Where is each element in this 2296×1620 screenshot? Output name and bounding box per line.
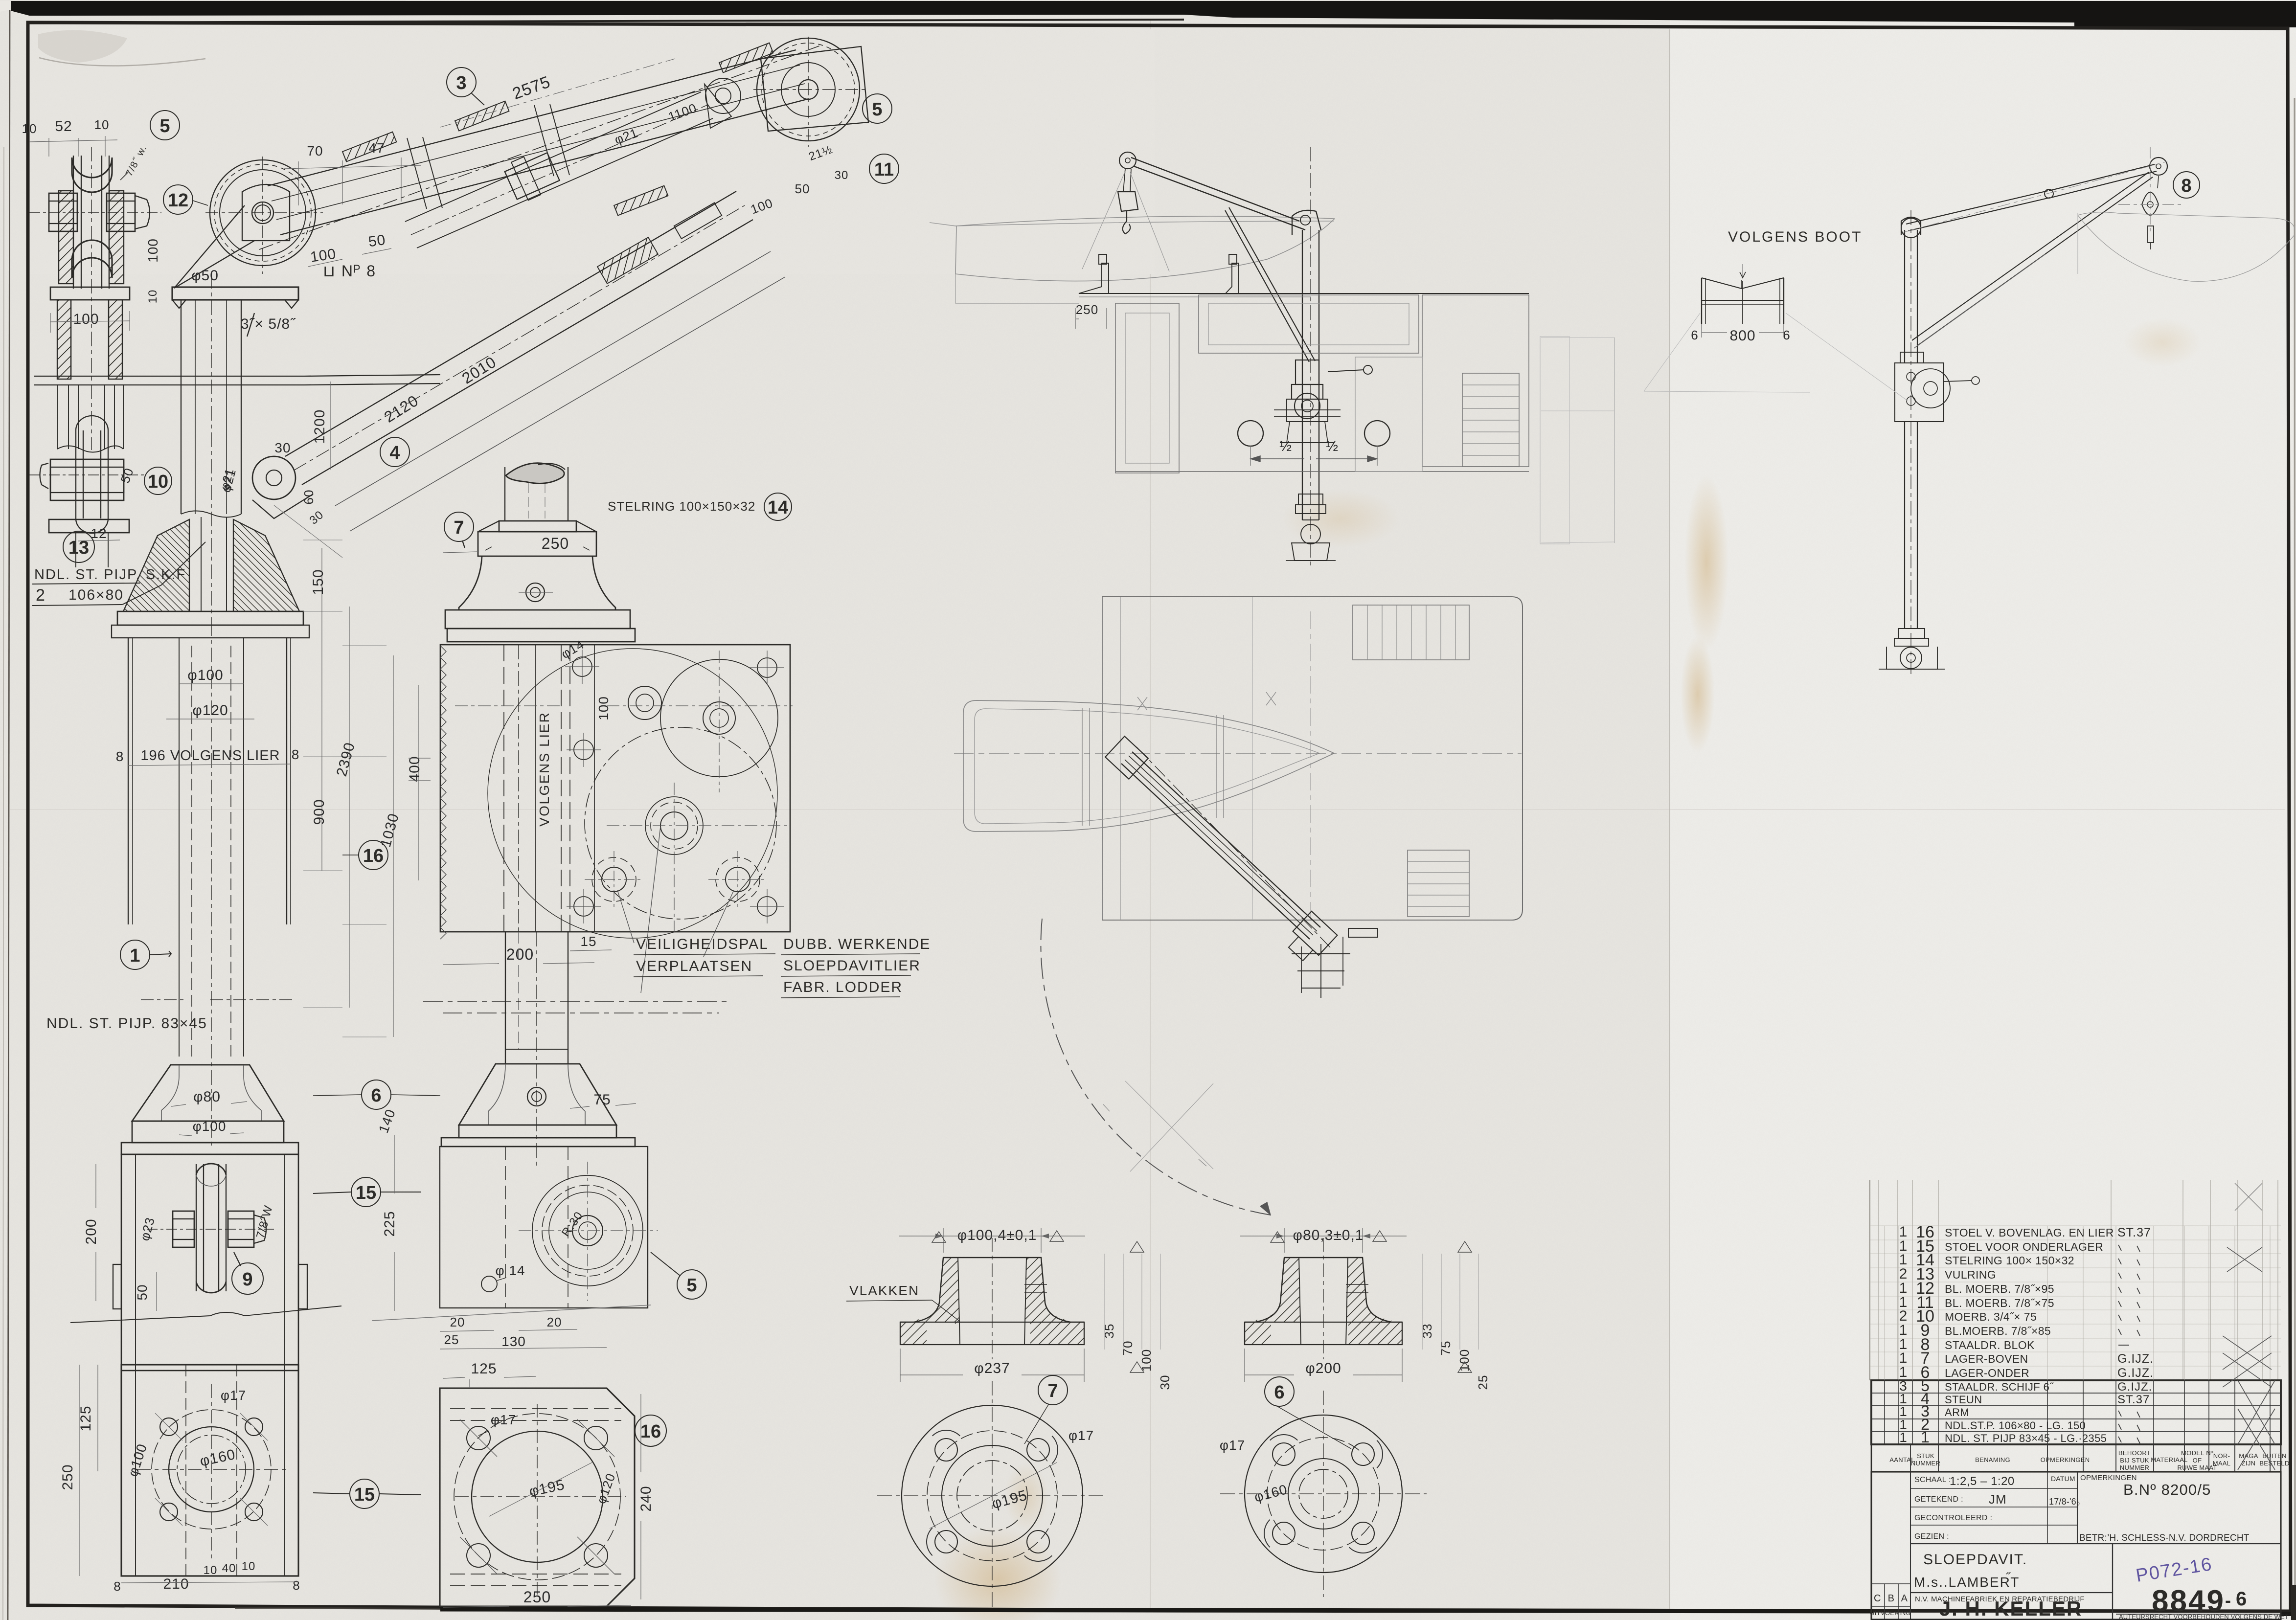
svg-text:VOLGENS LIER: VOLGENS LIER <box>537 712 552 827</box>
svg-text:50: 50 <box>135 1284 150 1300</box>
svg-text:RUWE MAAT: RUWE MAAT <box>2177 1464 2217 1471</box>
svg-text:G.IJZ.: G.IJZ. <box>2117 1380 2152 1394</box>
svg-text:125: 125 <box>78 1405 94 1431</box>
svg-text:250: 250 <box>60 1464 76 1490</box>
svg-text:400: 400 <box>407 756 423 782</box>
svg-text:6: 6 <box>371 1085 381 1106</box>
svg-text:13: 13 <box>68 538 89 558</box>
svg-text:B.Nº 8200/5: B.Nº 8200/5 <box>2123 1481 2211 1498</box>
svg-text:BEHOORT: BEHOORT <box>2118 1449 2151 1457</box>
svg-text:50: 50 <box>367 232 387 250</box>
svg-text:240: 240 <box>638 1485 654 1511</box>
svg-text:70: 70 <box>307 143 323 158</box>
svg-text:½: ½ <box>1326 438 1339 454</box>
svg-text:4: 4 <box>389 443 400 463</box>
svg-text:200: 200 <box>83 1218 99 1244</box>
svg-text:60: 60 <box>301 490 316 505</box>
svg-text:SCHAAL :: SCHAAL : <box>1914 1476 1951 1484</box>
svg-text:25: 25 <box>1476 1375 1490 1390</box>
svg-text:φ100,4±0,1: φ100,4±0,1 <box>957 1227 1037 1243</box>
svg-text:30: 30 <box>274 440 291 455</box>
svg-text:10: 10 <box>148 472 168 492</box>
svg-text:11: 11 <box>874 159 894 180</box>
svg-text:MAAL: MAAL <box>2213 1460 2231 1467</box>
svg-text:VULRING: VULRING <box>1945 1268 1996 1281</box>
svg-text:φ120: φ120 <box>192 702 228 719</box>
svg-text:-: - <box>2225 1590 2232 1610</box>
svg-text:LAGER-ONDER: LAGER-ONDER <box>1945 1367 2029 1379</box>
svg-text:75: 75 <box>1438 1341 1453 1356</box>
svg-text:100: 100 <box>1457 1349 1472 1372</box>
svg-text:75: 75 <box>593 1092 611 1108</box>
svg-text:GETEKEND :: GETEKEND : <box>1914 1495 1963 1504</box>
svg-text:STAALDR. SCHIJF 6˝: STAALDR. SCHIJF 6˝ <box>1945 1381 2054 1393</box>
svg-text:10: 10 <box>204 1564 218 1577</box>
svg-text:250: 250 <box>1076 302 1098 317</box>
svg-text:MAGA: MAGA <box>2239 1452 2258 1460</box>
svg-text:150: 150 <box>310 569 326 595</box>
svg-text:NOR-: NOR- <box>2213 1452 2230 1460</box>
svg-text:250: 250 <box>542 535 569 552</box>
svg-text:100: 100 <box>145 238 160 263</box>
svg-text:50: 50 <box>795 181 810 196</box>
svg-text:STELRING 100× 150×32: STELRING 100× 150×32 <box>1945 1254 2074 1267</box>
svg-text:10: 10 <box>22 121 37 136</box>
svg-text:UITVOERING: UITVOERING <box>1870 1609 1911 1617</box>
svg-text:52: 52 <box>55 118 72 135</box>
svg-text:A: A <box>1901 1593 1909 1604</box>
svg-text:6: 6 <box>1783 328 1790 342</box>
svg-text:3: 3 <box>456 73 466 93</box>
svg-text:φ200: φ200 <box>1305 1360 1341 1376</box>
svg-text:STOEL V. BOVENLAG. EN LIER: STOEL V. BOVENLAG. EN LIER <box>1945 1226 2114 1239</box>
svg-text:106×80: 106×80 <box>68 587 124 603</box>
svg-text:NUMMER: NUMMER <box>1911 1460 1940 1467</box>
svg-text:˝: ˝ <box>2006 1570 2011 1585</box>
svg-text:G.IJZ.: G.IJZ. <box>2117 1352 2154 1366</box>
svg-text:6: 6 <box>1691 328 1698 342</box>
svg-text:BETR:’H. SCHLESS-N.V. DORDRECH: BETR:’H. SCHLESS-N.V. DORDRECHT <box>2079 1533 2250 1543</box>
svg-text:φ50: φ50 <box>191 268 219 284</box>
svg-text:BIJ STUK: BIJ STUK <box>2120 1457 2149 1464</box>
svg-text:8: 8 <box>114 1579 121 1594</box>
svg-text:½: ½ <box>1279 438 1292 454</box>
svg-text:STUK: STUK <box>1917 1452 1934 1460</box>
svg-text:15: 15 <box>354 1485 375 1505</box>
svg-text:15: 15 <box>356 1183 376 1203</box>
svg-text:20: 20 <box>547 1315 562 1329</box>
svg-text:J. H. KELLER: J. H. KELLER <box>1939 1597 2082 1620</box>
svg-text:130: 130 <box>501 1334 526 1349</box>
svg-text:DATUM: DATUM <box>2051 1475 2075 1483</box>
svg-text:8: 8 <box>292 747 300 762</box>
svg-text:196 VOLGENS LIER: 196 VOLGENS LIER <box>140 748 280 764</box>
svg-text:SLOEPDAVITLIER: SLOEPDAVITLIER <box>783 958 921 974</box>
svg-text:ARM: ARM <box>1945 1406 1969 1418</box>
svg-text:φ 14: φ 14 <box>495 1263 525 1278</box>
svg-text:6: 6 <box>2236 1588 2248 1610</box>
svg-text:12: 12 <box>168 190 188 211</box>
svg-text:φ17: φ17 <box>221 1388 246 1403</box>
svg-text:VERPLAATSEN: VERPLAATSEN <box>636 958 752 974</box>
svg-text:35: 35 <box>1102 1324 1116 1339</box>
svg-text:VLAKKEN: VLAKKEN <box>849 1283 919 1298</box>
svg-text:GECONTROLEERD :: GECONTROLEERD : <box>1914 1514 1992 1522</box>
svg-text:7: 7 <box>454 517 464 538</box>
svg-text:VOLGENS BOOT: VOLGENS BOOT <box>1728 229 1862 245</box>
svg-text:SLOEPDAVIT.: SLOEPDAVIT. <box>1923 1552 2027 1568</box>
svg-text:10: 10 <box>94 117 110 132</box>
svg-text:1: 1 <box>1921 1428 1930 1446</box>
svg-text:16: 16 <box>363 846 384 866</box>
svg-text:15: 15 <box>580 934 596 949</box>
svg-text:8: 8 <box>116 749 124 764</box>
svg-text:6: 6 <box>1274 1382 1284 1403</box>
svg-text:10: 10 <box>146 290 159 304</box>
svg-text:5: 5 <box>159 116 170 136</box>
svg-text:210: 210 <box>163 1576 189 1592</box>
svg-text:1:2,5 – 1:20: 1:2,5 – 1:20 <box>1950 1475 2015 1488</box>
svg-text:10: 10 <box>242 1560 256 1573</box>
svg-text:30: 30 <box>835 169 849 182</box>
svg-text:STEUN: STEUN <box>1945 1394 1982 1406</box>
svg-text:MOERB. 3/4˝× 75: MOERB. 3/4˝× 75 <box>1945 1310 2037 1323</box>
svg-text:17/8-'6₀: 17/8-'6₀ <box>2049 1497 2080 1507</box>
svg-text:NDL.ST.P. 106×80 - LG. 150: NDL.ST.P. 106×80 - LG. 150 <box>1945 1419 2086 1432</box>
svg-text:LAGER-BOVEN: LAGER-BOVEN <box>1945 1352 2028 1365</box>
svg-text:φ80: φ80 <box>193 1089 221 1105</box>
svg-text:14: 14 <box>768 497 788 518</box>
svg-text:47: 47 <box>368 140 385 156</box>
svg-text:OF: OF <box>2193 1457 2202 1464</box>
svg-text:BL. MOERB. 7/8˝×95: BL. MOERB. 7/8˝×95 <box>1945 1282 2054 1295</box>
svg-text:BL.MOERB. 7/8˝×85: BL.MOERB. 7/8˝×85 <box>1945 1325 2051 1337</box>
svg-text:BESTELD: BESTELD <box>2259 1460 2289 1467</box>
svg-text:φ17: φ17 <box>1068 1428 1094 1443</box>
svg-text:DUBB. WERKENDE: DUBB. WERKENDE <box>783 936 931 952</box>
svg-text:BENAMING: BENAMING <box>1975 1456 2010 1463</box>
svg-text:MATERIAAL: MATERIAAL <box>2151 1456 2187 1463</box>
svg-text:ST.37: ST.37 <box>2117 1393 2150 1406</box>
svg-text:NDL. ST. PIJP 83×45 - LG.·235: NDL. ST. PIJP 83×45 - LG.·2355 <box>1945 1432 2107 1444</box>
svg-text:NDL. ST. PIJP. 83×45: NDL. ST. PIJP. 83×45 <box>46 1015 207 1032</box>
svg-text:33: 33 <box>1420 1324 1434 1339</box>
svg-text:8: 8 <box>2181 176 2191 196</box>
svg-text:1: 1 <box>130 945 140 966</box>
svg-text:7: 7 <box>1047 1381 1058 1401</box>
svg-text:30: 30 <box>1158 1375 1172 1390</box>
svg-text:1200: 1200 <box>312 409 328 444</box>
svg-text:φ237: φ237 <box>974 1360 1010 1376</box>
svg-text:8: 8 <box>293 1578 300 1593</box>
svg-text:φ17: φ17 <box>1220 1438 1245 1453</box>
svg-text:900: 900 <box>311 799 327 825</box>
svg-text:225: 225 <box>382 1211 398 1237</box>
svg-text:100: 100 <box>596 696 611 720</box>
svg-text:BL. MOERB. 7/8˝×75: BL. MOERB. 7/8˝×75 <box>1945 1297 2054 1309</box>
svg-text:16: 16 <box>640 1421 661 1442</box>
svg-text:70: 70 <box>1120 1341 1135 1356</box>
svg-text:40: 40 <box>222 1562 236 1575</box>
svg-text:125: 125 <box>471 1361 497 1377</box>
svg-text:5: 5 <box>872 99 882 120</box>
svg-text:JM: JM <box>1989 1492 2007 1507</box>
svg-text:M.s..LAMBERT: M.s..LAMBERT <box>1914 1575 2020 1590</box>
svg-text:9: 9 <box>242 1269 252 1290</box>
svg-text:5: 5 <box>686 1275 697 1296</box>
svg-text:φ17: φ17 <box>491 1412 516 1427</box>
svg-text:φ100: φ100 <box>187 667 224 683</box>
svg-text:FABR. LODDER: FABR. LODDER <box>783 979 903 995</box>
svg-text:2: 2 <box>36 586 45 605</box>
svg-text:C: C <box>1874 1593 1882 1604</box>
svg-text:200: 200 <box>506 945 534 963</box>
svg-text:B: B <box>1888 1593 1895 1604</box>
svg-text:25: 25 <box>444 1332 459 1347</box>
svg-text:STOEL VOOR ONDERLAGER: STOEL VOOR ONDERLAGER <box>1945 1240 2103 1253</box>
svg-text:250: 250 <box>523 1588 551 1606</box>
svg-text:STAALDR. BLOK: STAALDR. BLOK <box>1945 1339 2035 1351</box>
svg-text:1: 1 <box>1899 1430 1907 1445</box>
svg-text:G.IJZ.: G.IJZ. <box>2117 1366 2154 1380</box>
svg-text:20: 20 <box>450 1315 465 1329</box>
svg-text:⊔ Nᴾ 8: ⊔ Nᴾ 8 <box>323 262 376 280</box>
svg-text:12: 12 <box>91 526 107 541</box>
svg-text:φ80,3±0,1: φ80,3±0,1 <box>1293 1227 1364 1243</box>
svg-text:GEZIEN :: GEZIEN : <box>1914 1532 1949 1541</box>
svg-text:ST.37: ST.37 <box>2117 1226 2151 1239</box>
svg-text:φ100: φ100 <box>193 1119 227 1134</box>
svg-text:VEILIGHEIDSPAL: VEILIGHEIDSPAL <box>636 936 769 952</box>
svg-text:100: 100 <box>73 311 99 327</box>
svg-text:NUMMER: NUMMER <box>2120 1464 2149 1471</box>
svg-text:800: 800 <box>1729 328 1755 344</box>
svg-text:STELRING 100×150×32: STELRING 100×150×32 <box>608 499 755 514</box>
